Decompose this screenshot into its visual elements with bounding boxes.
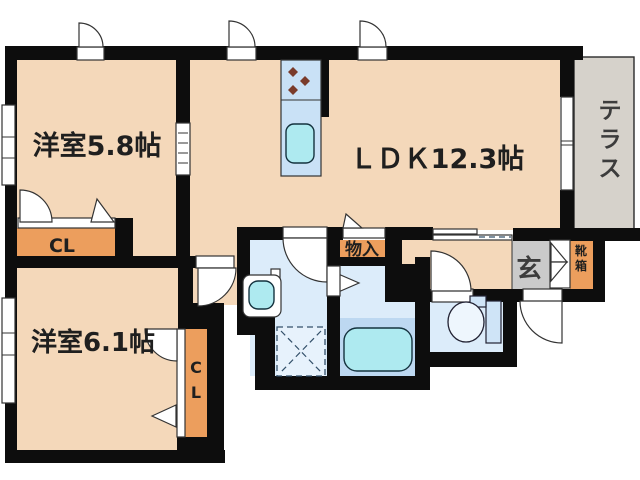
wall (513, 228, 640, 241)
wall (560, 46, 574, 97)
sliding-door-room1 (176, 123, 190, 175)
wall (327, 296, 340, 378)
wall (115, 218, 133, 258)
window-left-room2 (2, 298, 15, 403)
closet2-floor (185, 327, 207, 437)
window-terrace (561, 97, 573, 190)
room-5-8-label: 洋室5.8帖 (33, 130, 162, 162)
washbasin-bowl (249, 281, 274, 309)
front-door-arc (520, 301, 562, 343)
wall (560, 190, 574, 232)
wall (5, 450, 225, 463)
room-6-1-floor (17, 267, 178, 450)
window-left-room1 (2, 105, 15, 185)
bathroom-door-opening (327, 266, 340, 296)
closet1-label: CL (49, 235, 75, 257)
floorplan-drawing: 洋室5.8帖 ＬＤＫ12.3帖 洋室6.1帖 CL 物入 玄 テラス 靴箱 CL (0, 0, 640, 480)
wall (255, 376, 430, 390)
wall (593, 228, 605, 302)
bathtub (344, 328, 412, 371)
entrance-label: 玄 (516, 254, 541, 283)
toilet-tank (486, 301, 501, 343)
wall (207, 320, 224, 451)
window (227, 47, 256, 60)
room2-door-leaf (196, 256, 234, 268)
ldk-label: ＬＤＫ12.3帖 (350, 144, 525, 175)
wall (385, 228, 402, 302)
wall (417, 352, 517, 367)
washroom-door-leaf (283, 227, 327, 238)
window (358, 47, 387, 60)
wall (5, 256, 196, 268)
storage-label: 物入 (345, 239, 379, 260)
window-swing-arc (360, 21, 386, 47)
window-swing-arc (229, 21, 255, 47)
window-swing-arc (79, 23, 103, 47)
wall (327, 227, 343, 240)
room-6-1-label: 洋室6.1帖 (31, 327, 155, 358)
room-5-8-nook-floor (133, 218, 176, 258)
hall-sliding-door-panel (433, 229, 477, 234)
window (77, 47, 104, 60)
wall (417, 302, 425, 352)
floorplan: 洋室5.8帖 ＬＤＫ12.3帖 洋室6.1帖 CL 物入 玄 テラス 靴箱 CL (0, 0, 640, 480)
kitchen-sink (286, 124, 314, 163)
storage-door-track (343, 228, 385, 238)
front-door-opening (523, 289, 562, 302)
toilet-bowl (448, 302, 484, 342)
wall (177, 437, 224, 451)
terrace-label: テラス (599, 98, 622, 182)
closet2-door-track (177, 329, 185, 437)
